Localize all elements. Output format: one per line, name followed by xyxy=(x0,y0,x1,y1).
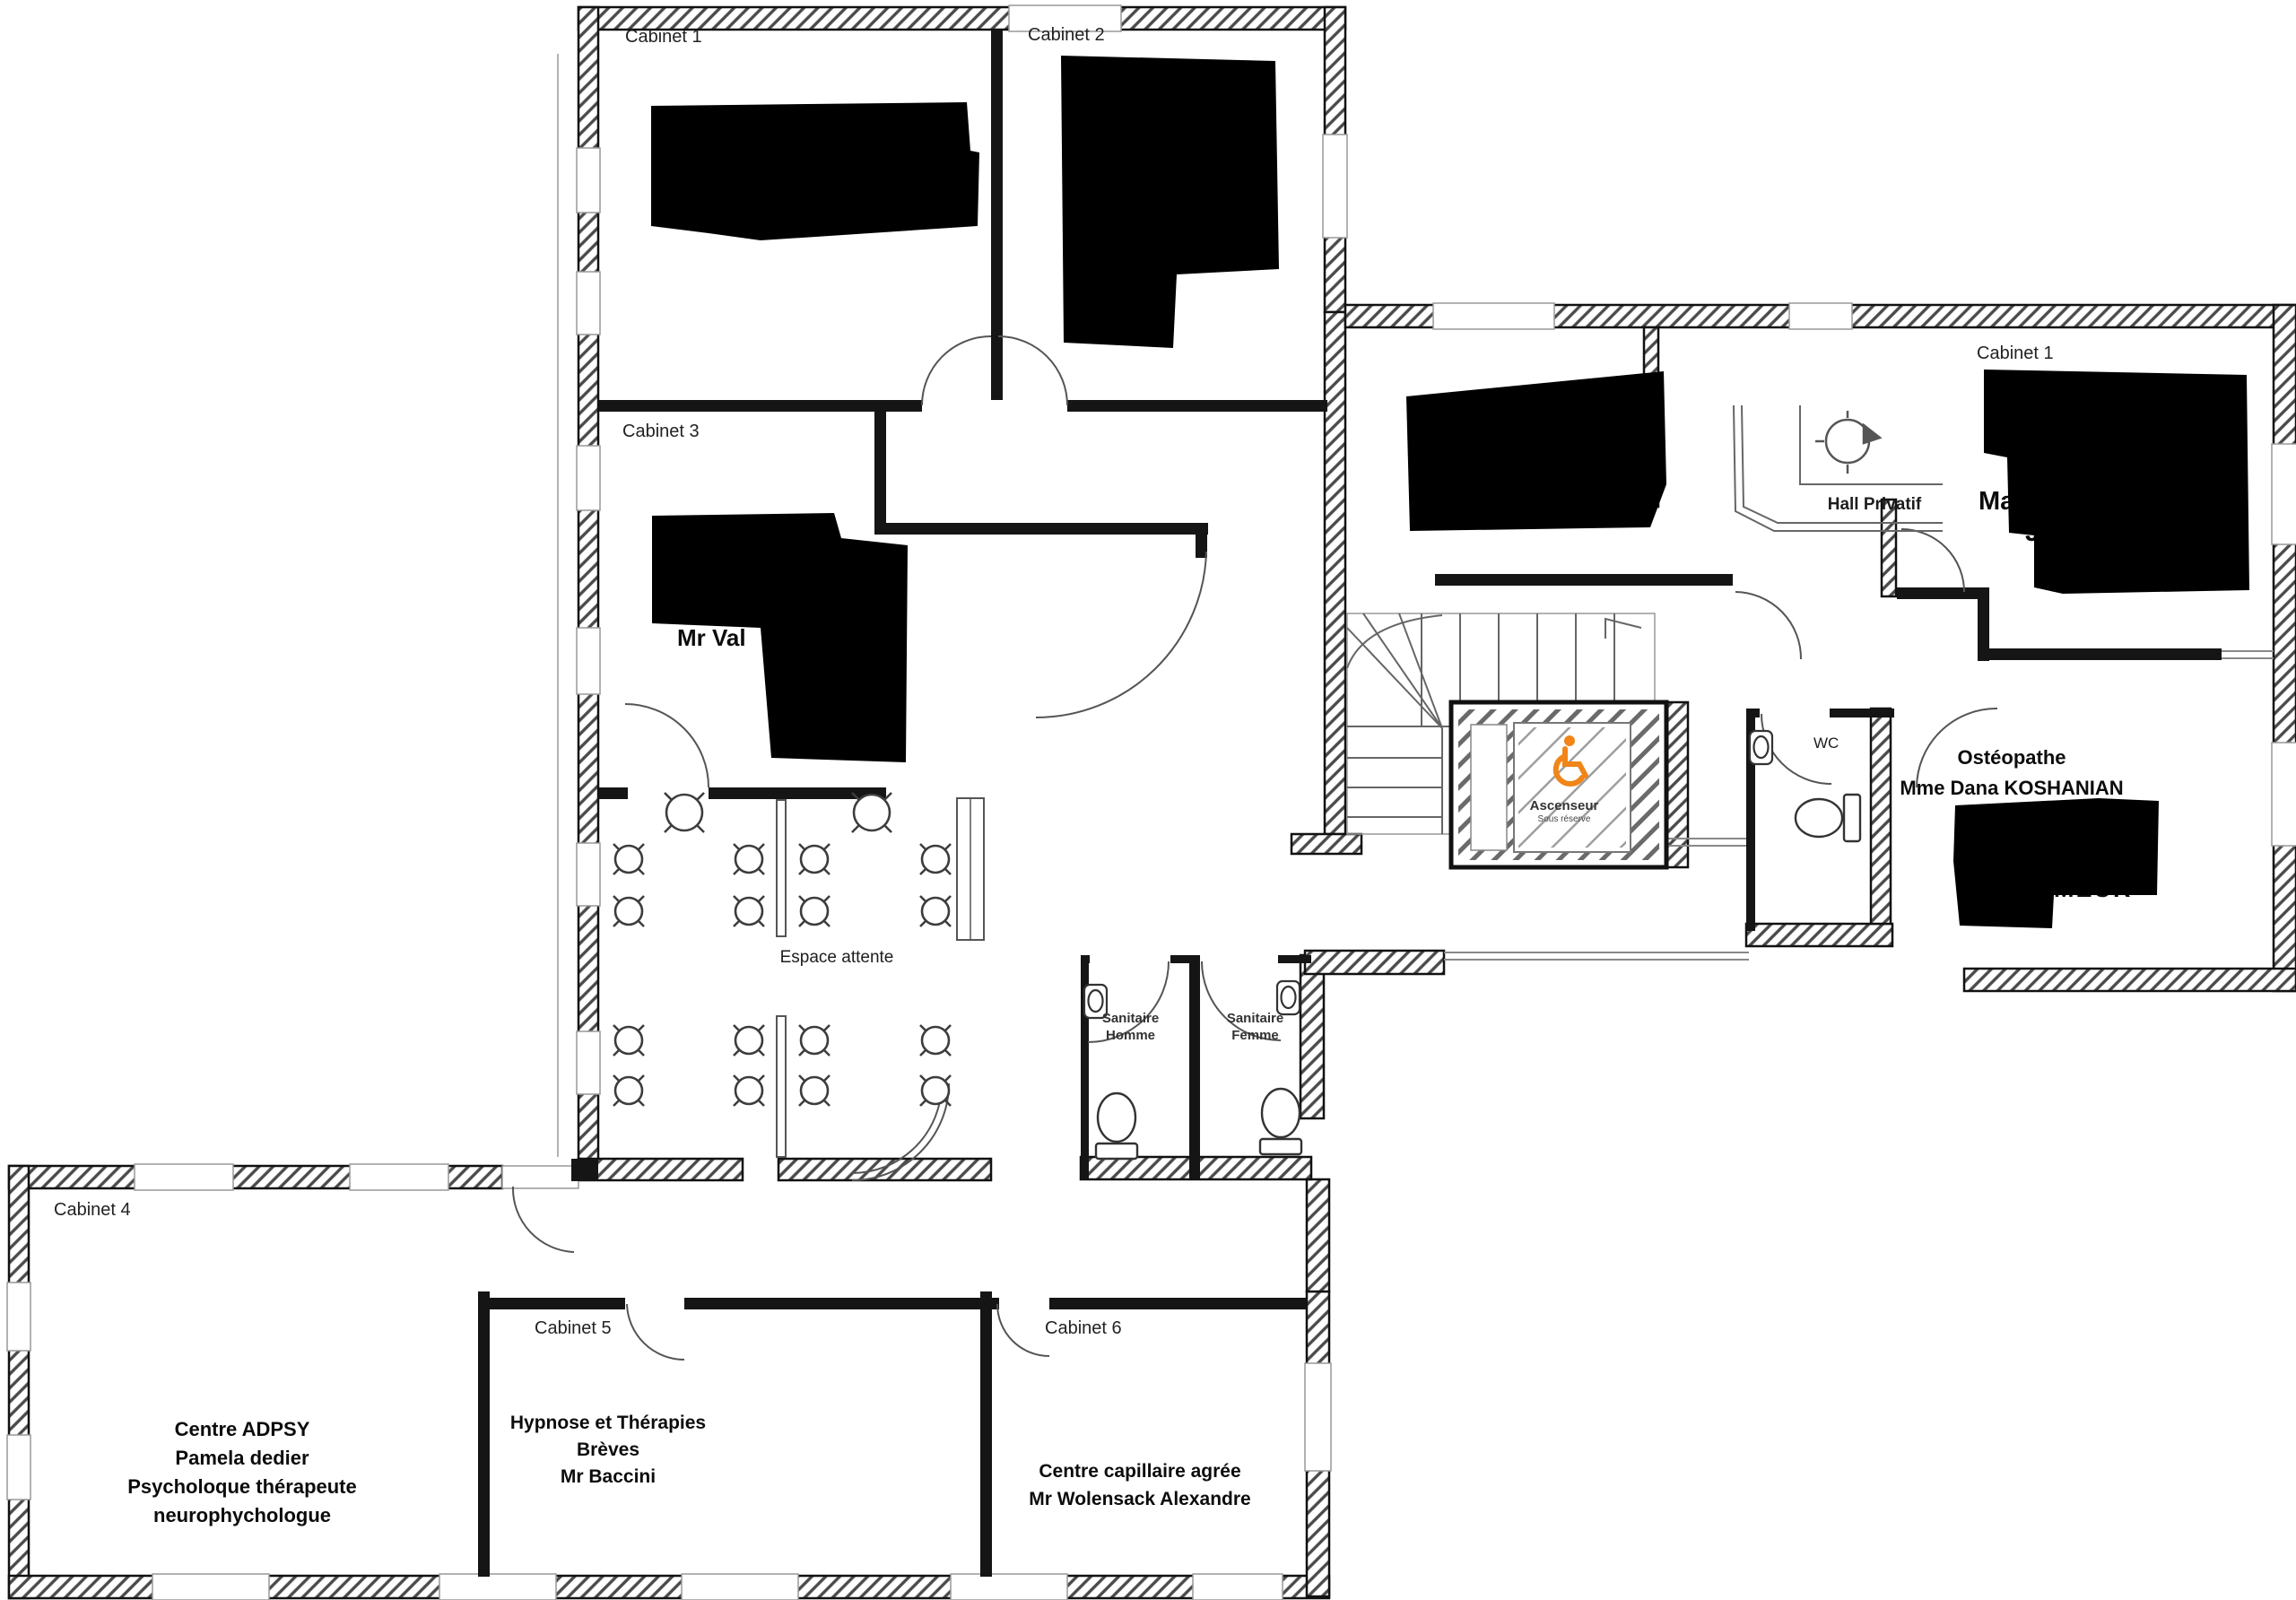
osteopathe-title: Ostéopathe xyxy=(1841,743,2182,773)
redaction-osteopathe xyxy=(1953,798,2159,928)
sanitaire-femme-line2: Femme xyxy=(1213,1027,1298,1044)
label-sanitaire-femme: Sanitaire Femme xyxy=(1213,1010,1298,1044)
cabinet4-line1: Centre ADPSY xyxy=(63,1415,422,1444)
label-cabinet1-right: Cabinet 1 xyxy=(1977,343,2054,363)
toilet-femme xyxy=(1260,1089,1301,1154)
door-right-cabinet1 xyxy=(1901,529,1964,592)
sanitaire-homme-line2: Homme xyxy=(1088,1027,1173,1044)
door-cabinet5 xyxy=(627,1304,684,1360)
door-cabinet1-left xyxy=(922,336,991,405)
doors xyxy=(513,336,1997,1360)
label-osteopathe: Ostéopathe Mme Dana KOSHANIAN xyxy=(1841,743,2182,804)
label-sanitaire-homme: Sanitaire Homme xyxy=(1088,1010,1173,1044)
door-corridor-large xyxy=(1036,552,1206,717)
redaction-topright-room xyxy=(1406,371,1666,531)
cabinet6-line1: Centre capillaire agrée xyxy=(996,1457,1283,1485)
redaction-cabinet2 xyxy=(1061,56,1279,348)
door-topright-room xyxy=(1735,592,1801,659)
elevator xyxy=(1451,702,1666,867)
label-cabinet1-left: Cabinet 1 xyxy=(625,27,702,47)
redaction-cabinet3 xyxy=(652,513,908,762)
label-espace-attente: Espace attente xyxy=(716,949,958,968)
cabinet5-line2: Brèves xyxy=(474,1437,743,1464)
toilet-homme xyxy=(1096,1093,1137,1159)
elevator-label: Ascenseur xyxy=(1474,799,1654,814)
sanitaire-femme-line1: Sanitaire xyxy=(1213,1010,1298,1027)
label-cabinet2: Cabinet 2 xyxy=(1028,25,1105,45)
door-cabinet6 xyxy=(997,1304,1049,1356)
label-centre-capillaire: Centre capillaire agrée Mr Wolensack Ale… xyxy=(996,1457,1283,1513)
stair-direction-arrow xyxy=(1605,619,1641,639)
cabinet5-line3: Mr Baccini xyxy=(474,1464,743,1491)
redaction-cabinet1-left xyxy=(651,102,979,240)
label-cabinet6: Cabinet 6 xyxy=(1045,1318,1122,1338)
cabinet5-line1: Hypnose et Thérapies xyxy=(474,1410,743,1437)
cabinet4-line2: Pamela dedier xyxy=(63,1444,422,1473)
sanitaire-homme-line1: Sanitaire xyxy=(1088,1010,1173,1027)
door-cabinet2 xyxy=(998,336,1067,405)
waiting-area xyxy=(613,793,984,1157)
door-corridor-left xyxy=(513,1187,574,1252)
door-cabinet3 xyxy=(625,704,709,787)
partition xyxy=(777,800,786,936)
redaction-right-cabinet1 xyxy=(1984,370,2249,594)
label-hypnose: Hypnose et Thérapies Brèves Mr Baccini xyxy=(474,1410,743,1491)
sink-hall xyxy=(1815,411,1880,474)
cabinet4-line3: Psycholoque thérapeute xyxy=(63,1473,422,1501)
label-centre-adpsy: Centre ADPSY Pamela dedier Psycholoque t… xyxy=(63,1415,422,1530)
label-cabinet3: Cabinet 3 xyxy=(622,422,700,441)
elevator-door xyxy=(1471,725,1507,850)
label-cabinet4: Cabinet 4 xyxy=(54,1200,131,1220)
label-wc: WC xyxy=(1813,735,1839,752)
label-hall-privatif: Hall Privatif xyxy=(1785,496,1964,515)
cabinet6-line2: Mr Wolensack Alexandre xyxy=(996,1485,1283,1513)
osteopathe-name: Mme Dana KOSHANIAN xyxy=(1841,773,2182,804)
sink-wc xyxy=(1750,731,1772,764)
floor-plan: Mr Val Mag J MEUR xyxy=(0,0,2296,1600)
elevator-sublabel: Sous réserve xyxy=(1474,814,1654,824)
partition xyxy=(777,1016,786,1157)
label-elevator: Ascenseur Sous réserve xyxy=(1474,799,1654,824)
label-cabinet5: Cabinet 5 xyxy=(535,1318,612,1338)
cabinet4-line4: neurophychologue xyxy=(63,1501,422,1530)
